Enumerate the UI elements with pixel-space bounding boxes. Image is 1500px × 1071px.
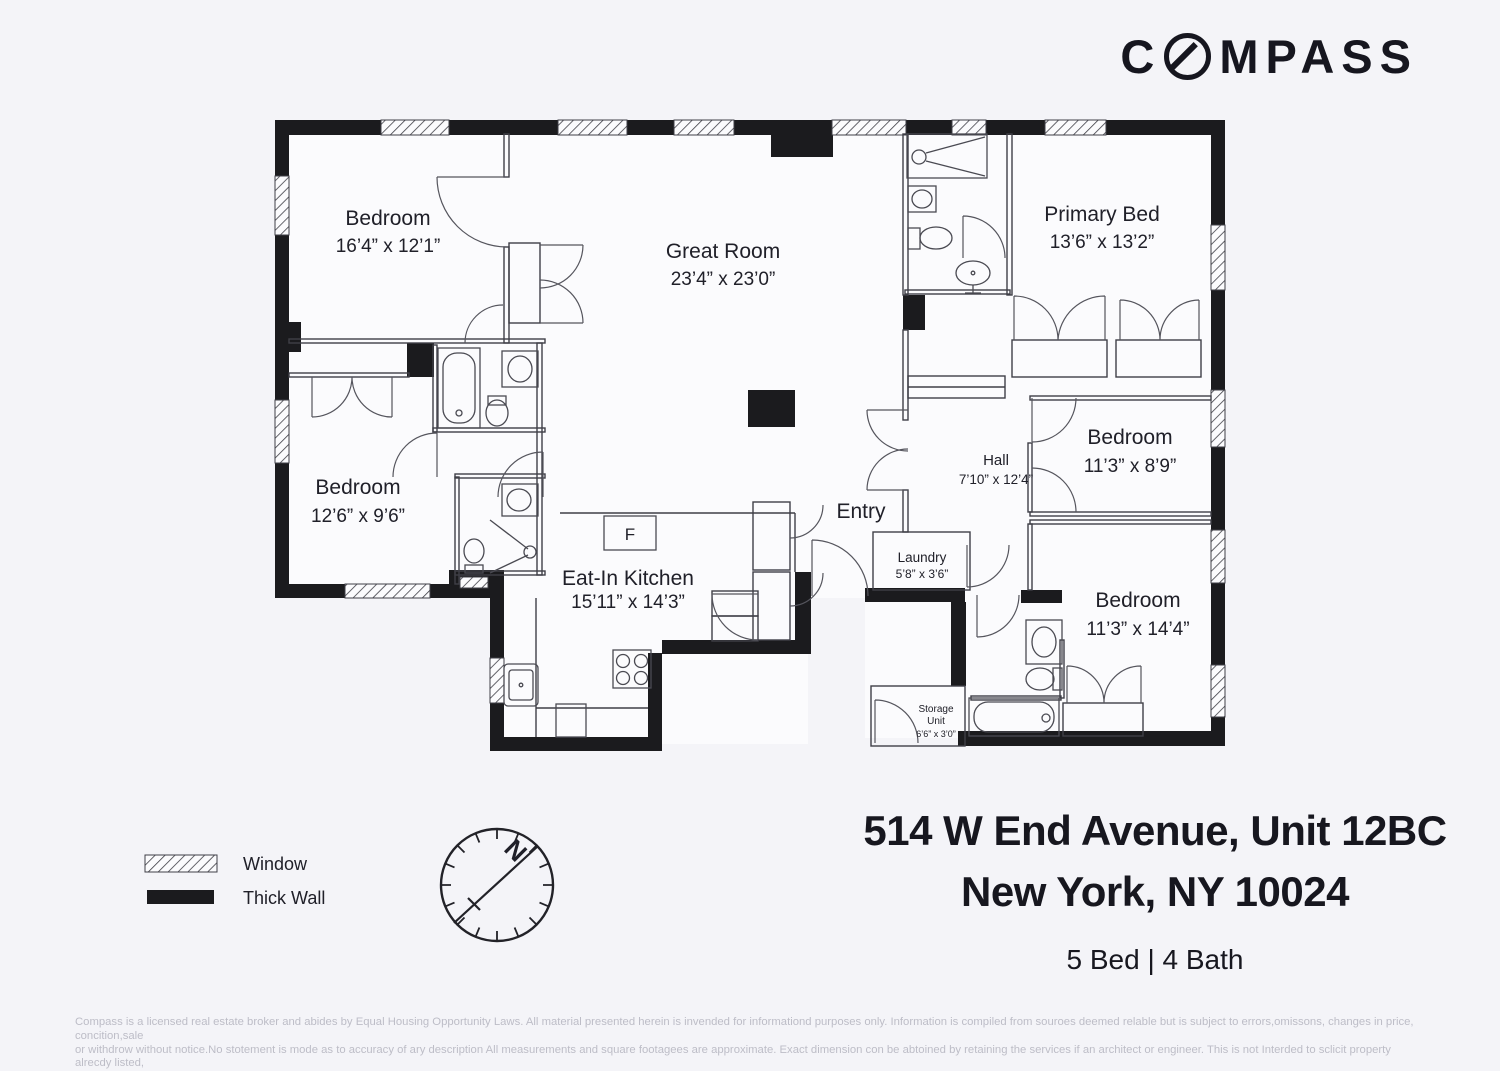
legend-thick-wall-swatch — [147, 890, 214, 904]
room-dims-great-room: 23’4” x 23’0” — [671, 269, 776, 290]
room-dims-primary-bed: 13’6” x 13’2” — [1050, 232, 1155, 253]
room-label-bedroom-mid-right: Bedroom — [1087, 426, 1172, 449]
address-block: 514 W End Avenue, Unit 12BC New York, NY… — [845, 800, 1465, 976]
room-label-entry: Entry — [836, 500, 886, 523]
disclaimer: Compass is a licensed real estate broker… — [75, 1016, 1425, 1071]
room-label-hall: Hall — [983, 452, 1009, 469]
room-dims-bedroom-top-left: 16’4” x 12’1” — [336, 236, 441, 257]
room-dims-hall: 7’10” x 12’4” — [959, 472, 1033, 487]
fridge-label: F — [625, 525, 635, 544]
legend-thick-wall-label: Thick Wall — [243, 888, 325, 908]
room-dims-bedroom-mid-left: 12’6” x 9’6” — [311, 506, 405, 527]
room-label-primary-bed: Primary Bed — [1044, 203, 1160, 226]
room-dims-laundry: 5’8” x 3’6” — [896, 567, 949, 581]
room-label-bedroom-mid-left: Bedroom — [315, 476, 400, 499]
room-label-storage-line1: Storage — [918, 704, 953, 715]
compass-rose-icon: N — [441, 829, 553, 941]
disclaimer-line2: or withdrow without notice.No stotement … — [75, 1044, 1425, 1071]
room-dims-eat-in-kitchen: 15’11” x 14’3” — [571, 592, 685, 613]
address-line1: 514 W End Avenue, Unit 12BC — [845, 800, 1465, 861]
room-label-bedroom-top-left: Bedroom — [345, 207, 430, 230]
floorplan-flyer: CMPASS — [0, 0, 1500, 1061]
column — [748, 390, 795, 427]
legend-window-swatch — [145, 855, 217, 872]
legend: Window Thick Wall — [145, 854, 325, 908]
address-line2: New York, NY 10024 — [845, 861, 1465, 922]
legend-window-label: Window — [243, 854, 308, 874]
room-label-storage-line2: Unit — [927, 716, 945, 727]
room-dims-bedroom-mid-right: 11’3” x 8’9” — [1084, 456, 1177, 477]
beds-baths: 5 Bed | 4 Bath — [845, 944, 1465, 976]
room-dims-storage: 6’6” x 3’0” — [916, 729, 956, 739]
room-label-laundry: Laundry — [898, 550, 947, 565]
disclaimer-line1: Compass is a licensed real estate broker… — [75, 1016, 1425, 1044]
room-dims-bedroom-bottom-right: 11’3” x 14’4” — [1086, 619, 1189, 640]
room-label-great-room: Great Room — [666, 240, 780, 263]
room-label-bedroom-bottom-right: Bedroom — [1095, 589, 1180, 612]
room-label-eat-in-kitchen: Eat-In Kitchen — [562, 567, 694, 590]
